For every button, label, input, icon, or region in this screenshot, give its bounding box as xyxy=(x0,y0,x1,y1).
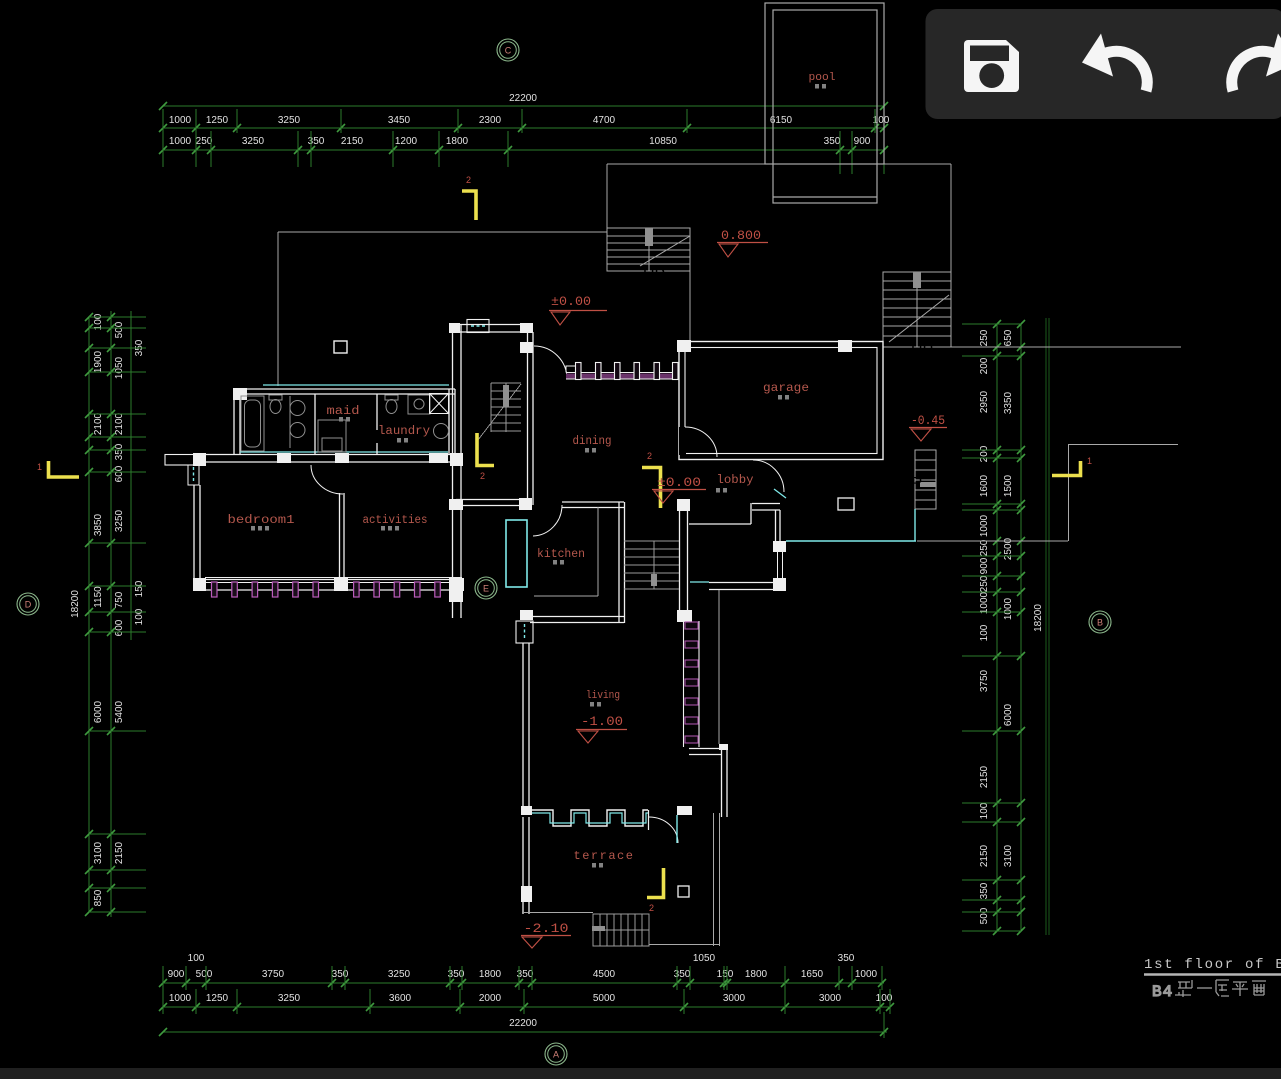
svg-text:350: 350 xyxy=(838,953,855,964)
svg-text:2150: 2150 xyxy=(114,841,125,864)
svg-text:3350: 3350 xyxy=(1003,391,1014,414)
svg-text:150: 150 xyxy=(717,969,734,980)
svg-text:900: 900 xyxy=(168,969,185,980)
svg-text:0.800: 0.800 xyxy=(721,228,761,243)
svg-text:350: 350 xyxy=(114,443,125,460)
svg-text:1250: 1250 xyxy=(206,115,229,126)
svg-text:3250: 3250 xyxy=(278,115,301,126)
svg-text:1900: 1900 xyxy=(93,350,104,373)
svg-text:500: 500 xyxy=(196,969,213,980)
svg-text:UP: UP xyxy=(650,918,672,935)
svg-text:±0.00: ±0.00 xyxy=(551,294,591,309)
svg-text:3100: 3100 xyxy=(93,841,104,864)
svg-text:maid: maid xyxy=(327,405,360,418)
svg-text:3250: 3250 xyxy=(114,509,125,532)
svg-text:A: A xyxy=(553,1050,559,1060)
svg-text:500: 500 xyxy=(114,321,125,338)
svg-text:850: 850 xyxy=(93,889,104,906)
svg-text:-1.00: -1.00 xyxy=(581,714,623,729)
svg-text:100: 100 xyxy=(979,802,990,819)
svg-text:2100: 2100 xyxy=(93,412,104,435)
svg-text:3250: 3250 xyxy=(388,969,411,980)
svg-text:250: 250 xyxy=(979,575,990,592)
svg-text:kitchen: kitchen xyxy=(537,548,585,561)
svg-text:lobby: lobby xyxy=(717,474,754,487)
svg-text:2: 2 xyxy=(466,175,471,185)
svg-text:250: 250 xyxy=(979,539,990,556)
svg-text:2: 2 xyxy=(649,903,654,913)
svg-text:1800: 1800 xyxy=(745,969,768,980)
svg-text:3000: 3000 xyxy=(819,993,842,1004)
svg-text:-0.45: -0.45 xyxy=(911,413,945,428)
svg-text:1000: 1000 xyxy=(855,969,878,980)
svg-text:250: 250 xyxy=(979,329,990,346)
svg-text:1000: 1000 xyxy=(979,514,990,537)
svg-text:terrace: terrace xyxy=(574,849,635,863)
svg-text:1000: 1000 xyxy=(1003,597,1014,620)
svg-text:3100: 3100 xyxy=(1003,844,1014,867)
svg-text:C: C xyxy=(505,46,512,56)
svg-text:1050: 1050 xyxy=(114,356,125,379)
svg-text:150: 150 xyxy=(134,580,145,597)
svg-text:1800: 1800 xyxy=(479,969,502,980)
svg-text:pool: pool xyxy=(809,72,836,84)
svg-text:4700: 4700 xyxy=(593,115,616,126)
svg-text:600: 600 xyxy=(114,619,125,636)
svg-text:1: 1 xyxy=(1087,456,1092,466)
svg-text:living: living xyxy=(586,690,620,702)
svg-text:1050: 1050 xyxy=(693,953,716,964)
svg-text:2: 2 xyxy=(480,471,485,481)
svg-text:2100: 2100 xyxy=(114,412,125,435)
svg-text:350: 350 xyxy=(674,969,691,980)
svg-text:2950: 2950 xyxy=(979,390,990,413)
svg-text:bedroom1: bedroom1 xyxy=(228,514,295,527)
svg-text:750: 750 xyxy=(114,591,125,608)
svg-text:3600: 3600 xyxy=(389,993,412,1004)
svg-text:350: 350 xyxy=(979,882,990,899)
svg-text:B: B xyxy=(1097,618,1103,628)
svg-text:1: 1 xyxy=(37,462,42,472)
svg-text:3250: 3250 xyxy=(278,993,301,1004)
svg-text:1600: 1600 xyxy=(979,474,990,497)
svg-text:1000: 1000 xyxy=(169,993,192,1004)
svg-text:2150: 2150 xyxy=(341,136,364,147)
svg-text:3750: 3750 xyxy=(979,669,990,692)
svg-text:10850: 10850 xyxy=(649,136,677,147)
svg-text:250: 250 xyxy=(196,136,213,147)
svg-text:UP: UP xyxy=(643,525,665,542)
svg-text:E: E xyxy=(483,584,489,594)
svg-text:2: 2 xyxy=(647,451,652,461)
svg-text:200: 200 xyxy=(979,445,990,462)
svg-text:4500: 4500 xyxy=(593,969,616,980)
svg-text:350: 350 xyxy=(308,136,325,147)
svg-text:1150: 1150 xyxy=(93,586,104,608)
svg-text:3450: 3450 xyxy=(388,115,411,126)
svg-text:UP: UP xyxy=(911,342,933,359)
svg-text:5000: 5000 xyxy=(593,993,616,1004)
svg-text:UP: UP xyxy=(900,475,922,492)
svg-text:B4: B4 xyxy=(1152,983,1173,1001)
svg-text:200: 200 xyxy=(979,357,990,374)
svg-text:3250: 3250 xyxy=(242,136,265,147)
svg-text:1200: 1200 xyxy=(395,136,418,147)
svg-text:2150: 2150 xyxy=(979,844,990,867)
svg-text:6000: 6000 xyxy=(1003,703,1014,726)
svg-text:activities: activities xyxy=(363,514,428,527)
svg-text:1000: 1000 xyxy=(169,136,192,147)
svg-text:6000: 6000 xyxy=(93,700,104,723)
svg-text:18200: 18200 xyxy=(70,590,81,618)
svg-text:1st floor of B: 1st floor of B xyxy=(1144,957,1281,973)
svg-text:1000: 1000 xyxy=(979,591,990,614)
svg-text:dining: dining xyxy=(573,435,612,448)
svg-text:UP: UP xyxy=(643,267,665,284)
svg-text:100: 100 xyxy=(188,953,205,964)
svg-text:1650: 1650 xyxy=(801,969,824,980)
svg-text:3850: 3850 xyxy=(93,513,104,536)
svg-text:1000: 1000 xyxy=(169,115,192,126)
svg-text:D: D xyxy=(25,600,32,610)
svg-text:1250: 1250 xyxy=(206,993,229,1004)
svg-text:3000: 3000 xyxy=(723,993,746,1004)
svg-text:650: 650 xyxy=(1003,329,1014,346)
svg-text:900: 900 xyxy=(979,557,990,574)
svg-text:22200: 22200 xyxy=(509,1018,537,1029)
svg-text:1500: 1500 xyxy=(1003,474,1014,497)
svg-text:garage: garage xyxy=(763,381,809,395)
svg-text:±0.00: ±0.00 xyxy=(657,475,701,490)
svg-text:UP: UP xyxy=(497,431,519,448)
svg-text:900: 900 xyxy=(854,136,871,147)
svg-text:2000: 2000 xyxy=(479,993,502,1004)
svg-text:5400: 5400 xyxy=(114,700,125,723)
svg-text:22200: 22200 xyxy=(509,93,537,104)
svg-text:2300: 2300 xyxy=(479,115,502,126)
svg-text:100: 100 xyxy=(979,624,990,641)
svg-text:350: 350 xyxy=(332,969,349,980)
svg-text:100: 100 xyxy=(134,608,145,625)
svg-text:500: 500 xyxy=(979,907,990,924)
svg-text:2150: 2150 xyxy=(979,765,990,788)
svg-text:600: 600 xyxy=(114,465,125,482)
svg-text:3750: 3750 xyxy=(262,969,285,980)
svg-text:-2.10: -2.10 xyxy=(524,921,569,936)
svg-text:laundry: laundry xyxy=(378,425,430,438)
svg-text:1800: 1800 xyxy=(446,136,469,147)
svg-text:350: 350 xyxy=(824,136,841,147)
svg-text:18200: 18200 xyxy=(1033,604,1044,632)
